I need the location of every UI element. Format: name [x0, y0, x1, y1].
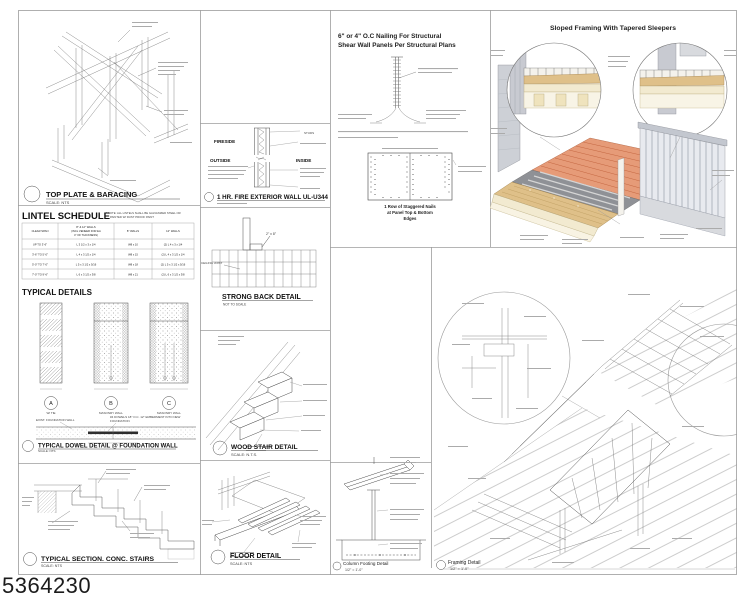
sloped-framing-illustration: Sloped Framing With Tapered Sleepers: [490, 10, 737, 247]
typical-details-heading: TYPICAL DETAILS: [22, 288, 93, 297]
strongback-title: STRONG BACK DETAIL: [222, 294, 302, 301]
typical-details-drawing: TYPICAL DETAILS A: [18, 285, 200, 452]
svg-text:W8 x 18: W8 x 18: [128, 263, 138, 267]
shear-panel: [368, 153, 456, 200]
lintel-row: 7'-0" TO 9'-6"L 6 x 3 1/2 x 3/8 W8 x 21(…: [32, 273, 185, 277]
inside-label: INSIDE: [296, 158, 311, 163]
footing-drawing: Column Footing Detail 1/2" = 1'-0": [330, 247, 431, 573]
lintel-schedule: LINTEL SCHEDULE * NOTE: ALL LINTELS SHAL…: [18, 205, 200, 285]
svg-text:7'-0" TO 9'-6": 7'-0" TO 9'-6": [32, 273, 48, 277]
woodstair-scale: SCALE: N.T.S.: [231, 452, 257, 457]
strongback-scale: NOT TO SCALE: [223, 303, 246, 307]
floor-drawing: FLOOR DETAIL SCALE: NTS: [200, 460, 330, 572]
shearwall-drawing: 6" or 4" O.C Nailing For Structural Shea…: [330, 10, 490, 247]
sloped-title: Sloped Framing With Tapered Sleepers: [550, 25, 676, 32]
svg-text:5'-0" TO 7'-0": 5'-0" TO 7'-0": [32, 263, 48, 267]
studs-label: STUDS: [304, 131, 314, 135]
dowel-title: TYPICAL DOWEL DETAIL @ FOUNDATION WALL: [38, 444, 178, 450]
svg-text:(2) L 5 x 3 1/2 x 5/16: (2) L 5 x 3 1/2 x 5/16: [161, 263, 186, 267]
firewall-drawing: FIRESIDE OUTSIDE INSIDE STUDS 1 HR. FIRE…: [200, 10, 330, 207]
svg-text:(2) L 4 x 3 x 1/4: (2) L 4 x 3 x 1/4: [164, 243, 183, 247]
svg-text:W8 x 15: W8 x 15: [128, 253, 138, 257]
stairs-drawing: TYPICAL SECTION. CONC. STAIRS SCALE: NTS: [18, 455, 200, 572]
framing-detail-circle: [438, 292, 600, 424]
stair-slab: [72, 485, 194, 549]
lintel-row: 3'-6" TO 5'-0"L 4 x 3 1/2 x 1/4 W8 x 15(…: [32, 253, 185, 257]
floor-scale: SCALE: NTS: [230, 562, 253, 566]
lintel-title: LINTEL SCHEDULE: [22, 211, 110, 222]
fireside-label: FIRESIDE: [214, 139, 235, 144]
footing-title: Column Footing Detail: [343, 561, 388, 566]
svg-text:L 5 x 3 1/2 x 5/16: L 5 x 3 1/2 x 5/16: [76, 263, 97, 267]
floor-title: FLOOR DETAIL: [230, 553, 282, 560]
strongback-size-callout: 2" x 8": [266, 232, 277, 236]
exist-foundation-label: EXIST. FOUNDATION WALL: [36, 418, 75, 422]
svg-text:L 4 x 3 1/2 x 1/4: L 4 x 3 1/2 x 1/4: [76, 253, 96, 257]
svg-text:W8 x 10: W8 x 10: [128, 243, 138, 247]
svg-text:3'-6" TO 5'-0": 3'-6" TO 5'-0": [32, 253, 48, 257]
deck-isometric: [490, 122, 727, 242]
drawing-sheet: TOP PLATE & BARACING SCALE: NTS LINTEL S…: [0, 0, 747, 600]
framing-scale: 1/2" = 1'-0": [450, 567, 469, 571]
stairs-scale: SCALE: NTS: [41, 564, 63, 568]
framing-title: Framing Detail: [448, 560, 481, 566]
shear-caption-1: 1 Row of Staggered Nails: [384, 204, 436, 209]
svg-text:(2) L 6 x 3 1/2 x 3/8: (2) L 6 x 3 1/2 x 3/8: [161, 273, 185, 277]
woodstair-title: WOOD STAIR DETAIL: [231, 444, 298, 451]
top-plate-bracing-drawing: TOP PLATE & BARACING SCALE: NTS: [18, 10, 200, 205]
lintel-note-2: PAINTED W/ RUST PROOF PAINT: [110, 215, 154, 219]
svg-text:L 6 x 3 1/2 x 3/8: L 6 x 3 1/2 x 3/8: [76, 273, 96, 277]
section-label-a: A: [49, 401, 53, 407]
firewall-title: 1 HR. FIRE EXTERIOR WALL UL-U344: [217, 194, 328, 201]
section-label-b: B: [109, 401, 113, 407]
svg-text:L 3 1/2 x 3 x 1/4: L 3 1/2 x 3 x 1/4: [76, 243, 96, 247]
ceiling-joist-label: CEILING JOIST: [201, 261, 223, 265]
shear-caption-3: Edges: [404, 216, 418, 221]
lintel-row: UP TO 3'-6"L 3 1/2 x 3 x 1/4 W8 x 10(2) …: [33, 243, 183, 247]
top-plate-title: TOP PLATE & BARACING: [46, 190, 137, 199]
shearwall-title-2: Shear Wall Panels Per Structural Plans: [338, 42, 456, 49]
right-detail-circle-content: [640, 34, 724, 114]
lintel-row: 5'-0" TO 7'-0"L 5 x 3 1/2 x 5/16 W8 x 18…: [32, 263, 186, 267]
lintel-header-2b: (INCL VENEER FOR EA: [71, 229, 101, 233]
svg-text:W8 x 21: W8 x 21: [128, 273, 138, 277]
lintel-header-8: 8" WALLS: [127, 229, 139, 233]
footing-scale: 1/2" = 1'-0": [345, 568, 363, 572]
lintel-header-span: CLEAR SPAN: [32, 229, 49, 233]
strongback-drawing: 2" x 8" CEILING JOIST STRONG BACK DETAIL…: [200, 207, 330, 330]
svg-text:UP TO 3'-6": UP TO 3'-6": [33, 243, 47, 247]
shear-caption-2: at Panel Top & Bottom: [387, 210, 433, 215]
dowel-detail: EXIST. FOUNDATION WALL #4 DOWELS 18" O.C…: [36, 415, 196, 443]
framing-drawing: Framing Detail 1/2" = 1'-0": [432, 248, 737, 573]
lintel-header-12: 12" WALLS: [166, 229, 180, 233]
stairs-title: TYPICAL SECTION. CONC. STAIRS: [41, 556, 155, 563]
lintel-header-2a: 8" & 12" WALLS: [76, 225, 96, 229]
dowel-note-2: FOUNDATION: [110, 419, 130, 423]
svg-text:(2) L 4 x 3 1/2 x 1/4: (2) L 4 x 3 1/2 x 1/4: [161, 253, 185, 257]
wall-section-a: [40, 303, 62, 389]
section-label-c: C: [167, 401, 171, 407]
wall-section-c: [150, 303, 188, 389]
section-sub-a: W/ TIE: [46, 411, 55, 415]
sheet-number: 5364230: [2, 573, 91, 599]
dowel-scale: SCALE: NTS: [38, 449, 56, 452]
outside-label: OUTSIDE: [210, 158, 230, 163]
wall-section-b: [94, 303, 128, 389]
lintel-header-2c: 4" OF THICKNESS): [74, 233, 98, 237]
shearwall-title-1: 6" or 4" O.C Nailing For Structural: [338, 33, 442, 40]
woodstair-drawing: WOOD STAIR DETAIL SCALE: N.T.S.: [200, 330, 330, 460]
